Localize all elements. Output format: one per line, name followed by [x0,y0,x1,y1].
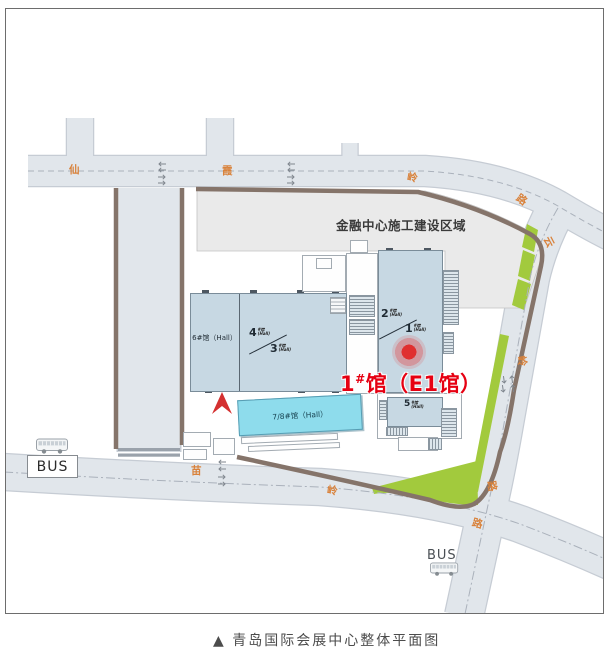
map-caption: ▲ 青岛国际会展中心整体平面图 [213,630,440,650]
hall-4-label: 4 #馆(Hall) [249,327,270,338]
road-label-char: 苗 [191,466,202,477]
hall-2-label: 2 #馆(Hall) [381,308,402,319]
hall-2-1-east-wing [443,270,459,325]
hall-divider [239,294,240,391]
highlight-hash: # [355,372,366,386]
hall-7-8-building: 7/8#馆（Hall） [237,394,363,436]
crossing-stripes [118,448,180,457]
hall-5-sub: (Hall) [411,405,423,410]
hall-1-num: 1 [405,323,413,334]
connector-block-north-inner [316,258,332,269]
corridor-note-block [330,297,346,314]
hall-5-stairs-east [441,408,457,437]
bus-stop-south-label: BUS [427,548,457,563]
corridor-stairs-1 [349,295,375,317]
hall-1-sub: (Hall) [414,328,426,333]
road-label-char: 岭 [406,172,418,184]
hall-3-num: 3 [270,343,278,354]
bus-icon-west [37,439,68,454]
road-label-char: 路 [471,518,484,531]
hall-2-1-east-wing-2 [443,332,454,354]
highlight-rest: 馆（E1馆） [366,372,482,396]
hall-5-stairs-south [386,427,408,436]
road-label-char: 霞 [222,166,233,177]
highlight-hall-label: 1#馆（E1馆） [340,368,482,398]
red-target-dot-icon [392,335,426,369]
hall-2-num: 2 [381,308,389,319]
road-label-char: 路 [485,480,497,492]
hall-5-stairs-west [379,400,387,420]
hall-4-num: 4 [249,327,257,338]
road-miaoling [6,472,603,562]
platform-west-3 [213,438,235,455]
hall-3-label: 3 #馆(Hall) [270,343,291,354]
hall-3-sub: (Hall) [279,348,291,353]
corridor-stairs-2 [349,319,375,335]
hall-1-label: 1 #馆(Hall) [405,323,426,334]
road-label-char: 岭 [326,485,338,497]
hall-5-num: 5 [404,400,410,409]
hall-6-label: 6#馆（Hall） [191,333,238,343]
platform-west-2 [183,449,207,460]
site-plan-page: 6#馆（Hall） 4 #馆(Hall) 3 #馆(Hall) 2 #馆(Hal… [0,0,610,658]
platform-west-1 [183,432,211,447]
hall-7-8-label: 7/8#馆（Hall） [272,408,328,422]
highlight-num: 1 [340,372,355,396]
hall-4-sub: (Hall) [258,332,270,337]
hall-2-sub: (Hall) [390,313,402,318]
connector-block-top [350,240,368,253]
red-nav-arrow-icon [212,392,232,414]
road-label-char: 岭 [515,355,527,367]
bus-stop-west-label: BUS [27,455,78,478]
hall-5-label: 5 #馆(Hall) [404,400,424,410]
construction-area-label: 金融中心施工建设区域 [336,215,466,234]
road-label-char: 仙 [69,165,80,176]
hall-5-annex-stairs [428,438,442,450]
